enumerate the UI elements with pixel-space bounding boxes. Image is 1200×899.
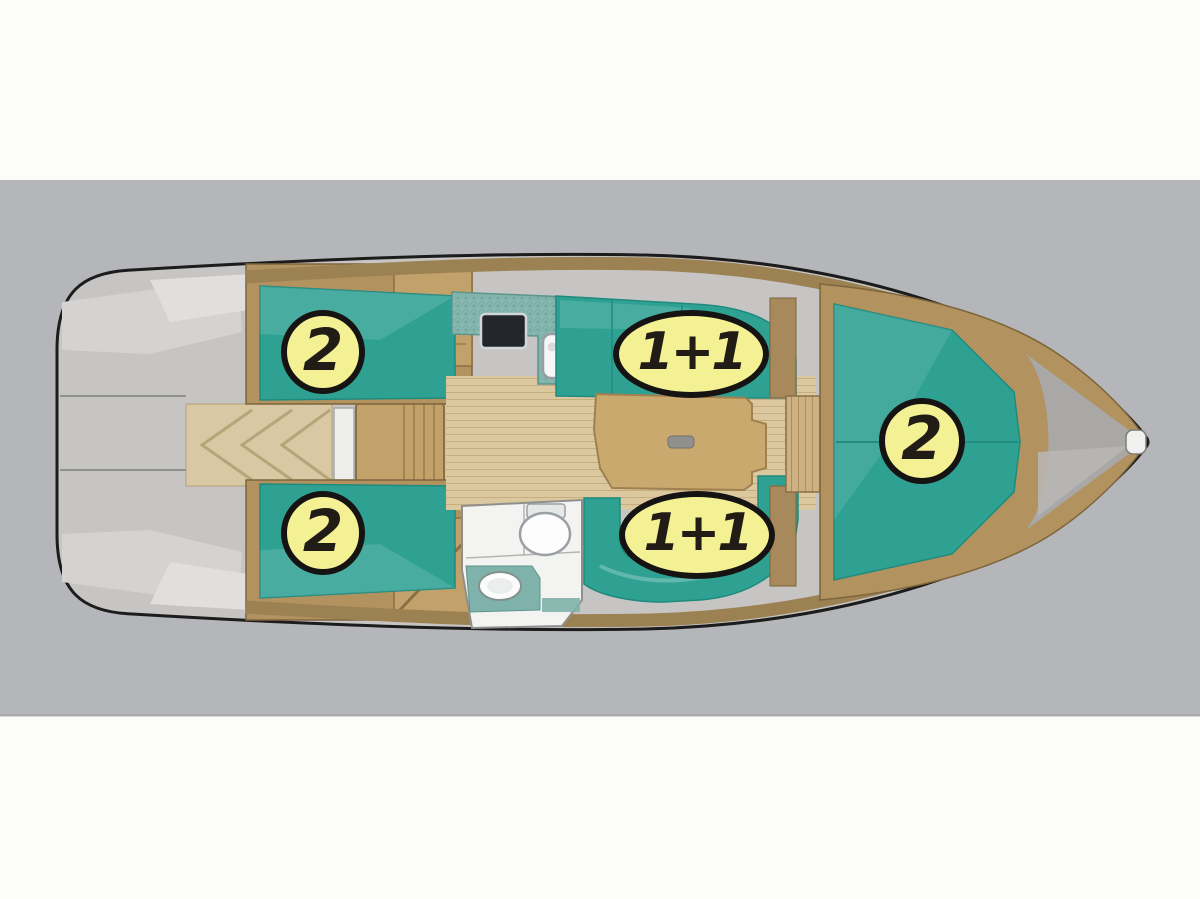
berth-badge-label: 2 (303, 321, 343, 379)
berth-badge-label: 2 (303, 502, 343, 560)
berth-badge-label: 1+1 (638, 326, 745, 378)
companionway-cabinet (356, 398, 444, 490)
table-pedestal (668, 436, 694, 448)
berth-badge-aft-starboard: 2 (281, 491, 365, 575)
bow-fitting (1126, 430, 1146, 454)
berth-badge-label: 2 (901, 409, 943, 469)
head-compartment (462, 500, 582, 628)
bulkhead-post (770, 298, 796, 398)
cockpit-sole-teak (186, 404, 332, 486)
berth-badge-label: 1+1 (644, 507, 751, 559)
head-shelf (542, 598, 580, 612)
berth-badge-forward-cabin: 2 (879, 398, 965, 484)
berth-badge-saloon-starboard: 1+1 (619, 491, 775, 579)
sink-drain (548, 343, 557, 352)
berth-badge-aft-port: 2 (281, 310, 365, 394)
band-bottom-divider (0, 715, 1200, 717)
toilet-icon (520, 513, 570, 555)
washbasin-bowl (487, 578, 513, 594)
berth-badge-saloon-port: 1+1 (613, 310, 769, 398)
engine-hatch (334, 408, 354, 480)
yacht-layout-diagram: 2 2 1+1 1+1 2 (0, 0, 1200, 899)
stove-icon (481, 314, 526, 348)
boat-plan-drawing (0, 0, 1200, 899)
saloon-table (594, 394, 766, 490)
